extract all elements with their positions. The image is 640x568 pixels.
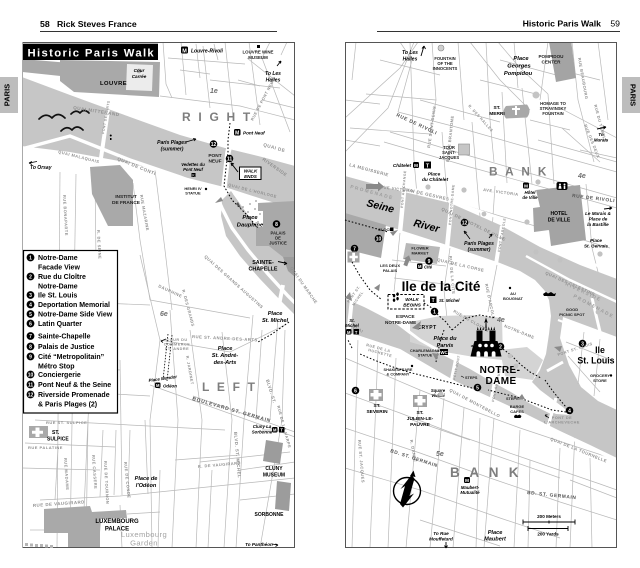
svg-text:R I G H T: R I G H T <box>182 110 252 124</box>
svg-text:Ile de la Cité: Ile de la Cité <box>402 279 481 294</box>
svg-text:To: To <box>598 132 604 137</box>
svg-text:PALAIS: PALAIS <box>383 268 398 273</box>
svg-text:6e: 6e <box>160 311 168 318</box>
svg-text:MUSEUM: MUSEUM <box>263 473 285 479</box>
svg-text:1e: 1e <box>210 88 218 95</box>
svg-text:Mutualité: Mutualité <box>460 490 480 495</box>
svg-text:la Bastille: la Bastille <box>587 222 609 227</box>
svg-text:Maubert: Maubert <box>484 537 507 543</box>
svg-text:WALK: WALK <box>405 297 419 302</box>
svg-text:Garden: Garden <box>130 539 158 548</box>
svg-text:Dauphine: Dauphine <box>237 223 264 229</box>
svg-text:POMPIDOU: POMPIDOU <box>538 54 564 59</box>
svg-text:T: T <box>280 428 283 433</box>
svg-text:LUXEMBOURG: LUXEMBOURG <box>95 519 139 525</box>
svg-text:Châtelet: Châtelet <box>393 163 412 168</box>
svg-text:B A N K: B A N K <box>489 165 549 179</box>
svg-text:STATUE: STATUE <box>185 191 201 196</box>
svg-text:2: 2 <box>499 345 502 351</box>
svg-text:STATUE: STATUE <box>418 353 433 357</box>
svg-text:5: 5 <box>29 312 32 318</box>
svg-text:Facade View: Facade View <box>38 265 80 272</box>
svg-text:CLUNY: CLUNY <box>265 466 283 472</box>
svg-text:Notre-Dame Side View: Notre-Dame Side View <box>38 312 113 319</box>
svg-text:HOTEL: HOTEL <box>551 211 568 217</box>
svg-text:M: M <box>273 428 277 433</box>
svg-text:Palais de Justice: Palais de Justice <box>38 344 95 351</box>
svg-text:St. Louis: St. Louis <box>577 356 614 366</box>
svg-text:M: M <box>235 131 239 137</box>
svg-text:To Les: To Les <box>402 50 418 56</box>
svg-text:Marais: Marais <box>594 138 609 143</box>
svg-text:Place: Place <box>428 172 441 178</box>
svg-text:Sainte-Chapelle: Sainte-Chapelle <box>38 334 91 341</box>
svg-text:des-Arts: des-Arts <box>214 360 237 366</box>
svg-text:CAFES: CAFES <box>510 409 524 414</box>
svg-text:NOTRE-DAME: NOTRE-DAME <box>385 320 416 325</box>
svg-text:4e: 4e <box>577 173 586 180</box>
svg-text:MUSEUM: MUSEUM <box>248 55 268 60</box>
svg-text:du Châtelet: du Châtelet <box>422 177 449 183</box>
svg-text:Louvre-Rivoli: Louvre-Rivoli <box>191 49 224 55</box>
svg-text:Place: Place <box>242 215 258 221</box>
svg-text:Historic Paris Walk: Historic Paris Walk <box>28 47 156 59</box>
svg-text:Place: Place <box>513 56 529 62</box>
svg-text:Conciergerie: Conciergerie <box>38 372 81 379</box>
svg-text:St. Michel: St. Michel <box>439 298 460 303</box>
svg-text:B A N K: B A N K <box>450 465 522 480</box>
svg-text:MERRI: MERRI <box>489 111 505 117</box>
svg-text:PONT: PONT <box>208 153 221 159</box>
svg-text:St. Michel: St. Michel <box>262 318 289 324</box>
svg-text:T: T <box>432 298 435 304</box>
svg-text:58: 58 <box>40 19 50 29</box>
svg-text:SORBONNE: SORBONNE <box>255 512 285 518</box>
svg-text:Riverside Promenade: Riverside Promenade <box>38 392 110 399</box>
svg-text:ST.: ST. <box>494 105 501 111</box>
svg-text:CHAPELLE: CHAPELLE <box>248 267 277 273</box>
svg-text:ENDS: ENDS <box>244 174 258 179</box>
svg-text:WC: WC <box>440 350 448 355</box>
svg-text:COUR DU: COUR DU <box>166 338 187 342</box>
svg-text:5e: 5e <box>436 451 444 458</box>
svg-text:CENTER: CENTER <box>542 60 562 65</box>
svg-text:M: M <box>414 163 418 168</box>
svg-text:9: 9 <box>29 355 32 361</box>
svg-text:Latin Quarter: Latin Quarter <box>38 321 82 328</box>
svg-text:4e: 4e <box>496 317 505 324</box>
svg-text:Notre-Dame: Notre-Dame <box>38 284 78 291</box>
svg-text:To Panthéon: To Panthéon <box>245 542 273 547</box>
svg-text:Ile: Ile <box>595 345 605 355</box>
svg-text:CRYPT: CRYPT <box>417 325 436 331</box>
svg-text:Pompidou: Pompidou <box>504 71 533 77</box>
svg-text:PAUVRE: PAUVRE <box>410 422 430 428</box>
svg-text:Place: Place <box>218 346 233 352</box>
svg-text:de Ville: de Ville <box>522 195 538 200</box>
svg-text:To Les: To Les <box>265 71 281 77</box>
svg-text:Place de: Place de <box>589 217 608 222</box>
svg-text:Rue du Cloître: Rue du Cloître <box>38 274 86 281</box>
svg-text:Carrée: Carrée <box>132 74 147 79</box>
svg-text:10: 10 <box>28 373 34 379</box>
svg-text:Notre-Dame: Notre-Dame <box>38 255 78 262</box>
svg-text:M: M <box>182 48 187 54</box>
svg-text:To Rue: To Rue <box>433 531 449 536</box>
svg-text:Place de: Place de <box>135 476 158 482</box>
svg-text:Pont Neuf & the Seine: Pont Neuf & the Seine <box>38 382 111 389</box>
svg-text:MARKET: MARKET <box>411 250 429 255</box>
svg-text:M: M <box>465 478 469 483</box>
svg-text:RUE PALATINE: RUE PALATINE <box>28 445 63 450</box>
svg-text:St. André-: St. André- <box>212 353 239 359</box>
svg-text:WALK: WALK <box>244 169 258 174</box>
svg-text:JACQUES: JACQUES <box>439 155 459 160</box>
svg-text:Rick Steves France: Rick Steves France <box>57 19 137 29</box>
svg-text:M: M <box>347 330 351 335</box>
svg-text:Cour: Cour <box>134 68 145 73</box>
svg-text:1: 1 <box>433 310 436 316</box>
svg-text:M: M <box>524 184 528 189</box>
svg-text:1: 1 <box>29 256 32 262</box>
svg-text:4: 4 <box>568 409 571 415</box>
svg-text:200 Meters: 200 Meters <box>537 514 561 519</box>
svg-text:Historic Paris Walk: Historic Paris Walk <box>523 19 602 29</box>
svg-text:BEGINS: BEGINS <box>403 303 422 308</box>
svg-text:COMMERCE: COMMERCE <box>164 343 191 347</box>
svg-text:NEUF: NEUF <box>208 159 221 165</box>
svg-text:Place: Place <box>488 530 503 536</box>
svg-text:Place: Place <box>590 238 602 243</box>
svg-text:Michel: Michel <box>345 323 359 328</box>
svg-text:FOUNTAIN: FOUNTAIN <box>542 111 563 116</box>
svg-text:Odéon: Odéon <box>163 384 177 389</box>
svg-text:PARIS: PARIS <box>3 84 12 106</box>
svg-text:SULPICE: SULPICE <box>47 437 69 443</box>
svg-text:6: 6 <box>354 389 357 395</box>
svg-text:JULIEN-LE-: JULIEN-LE- <box>407 416 434 422</box>
svg-text:PICNIC SPOT: PICNIC SPOT <box>559 312 585 317</box>
svg-text:8: 8 <box>29 345 32 351</box>
svg-text:INSTITUT: INSTITUT <box>115 194 137 200</box>
svg-text:Paris Plages: Paris Plages <box>157 140 187 146</box>
svg-text:& COMPANY: & COMPANY <box>387 373 410 377</box>
svg-text:6: 6 <box>29 322 32 328</box>
svg-text:Cité: Cité <box>424 265 433 270</box>
svg-text:SHAKESPEARE: SHAKESPEARE <box>384 368 413 372</box>
svg-text:Sorbonne: Sorbonne <box>252 430 273 435</box>
svg-text:STORE: STORE <box>593 378 607 383</box>
svg-text:LOUVRE WINE: LOUVRE WINE <box>243 50 274 55</box>
svg-text:10: 10 <box>376 237 382 243</box>
svg-text:(summer): (summer) <box>161 147 184 153</box>
svg-text:L'ARCHEVECHE: L'ARCHEVECHE <box>544 421 580 425</box>
svg-text:Le Marais &: Le Marais & <box>585 211 611 216</box>
svg-text:4: 4 <box>29 303 32 309</box>
svg-text:Pont Neuf: Pont Neuf <box>243 131 265 136</box>
svg-text:T: T <box>355 330 358 335</box>
svg-text:INNOCENTS: INNOCENTS <box>433 66 458 71</box>
svg-text:7: 7 <box>29 334 32 340</box>
svg-text:Ile St. Louis: Ile St. Louis <box>38 293 77 300</box>
svg-text:M: M <box>156 383 160 388</box>
svg-text:Halles: Halles <box>403 57 418 63</box>
svg-text:11: 11 <box>28 383 34 389</box>
svg-text:12: 12 <box>28 393 34 399</box>
svg-text:L E F T: L E F T <box>202 380 257 394</box>
svg-text:2: 2 <box>29 275 32 281</box>
svg-text:59: 59 <box>610 19 620 29</box>
svg-text:St. Gervais: St. Gervais <box>584 244 608 249</box>
svg-text:SEVERIN: SEVERIN <box>366 409 388 415</box>
svg-text:Place: Place <box>268 311 283 317</box>
svg-text:8: 8 <box>275 222 278 228</box>
svg-text:l'Odéon: l'Odéon <box>136 483 157 489</box>
svg-text:To Orsay: To Orsay <box>30 165 52 171</box>
svg-text:Métro Stop: Métro Stop <box>38 364 75 371</box>
svg-text:Place du: Place du <box>433 336 457 342</box>
svg-text:DE VILLE: DE VILLE <box>548 218 571 224</box>
svg-text:Georges: Georges <box>507 64 531 70</box>
svg-text:PONT DE: PONT DE <box>552 416 572 420</box>
svg-text:Cluny La: Cluny La <box>253 424 272 429</box>
svg-text:Mouffetard: Mouffetard <box>429 537 453 542</box>
svg-text:Cité “Metropolitain”: Cité “Metropolitain” <box>38 354 104 361</box>
svg-text:JUSTICE: JUSTICE <box>269 241 287 246</box>
svg-text:SAINTE-: SAINTE- <box>252 260 274 266</box>
svg-text:ST.: ST. <box>52 430 60 436</box>
svg-text:Pont Neuf: Pont Neuf <box>183 167 203 172</box>
svg-text:BOUGNAT: BOUGNAT <box>503 296 523 301</box>
svg-text:ST. ANDRE: ST. ANDRE <box>165 347 189 351</box>
svg-text:200 Yards: 200 Yards <box>537 532 559 537</box>
svg-text:STEPS: STEPS <box>506 397 519 401</box>
svg-text:(summer): (summer) <box>468 247 491 253</box>
svg-text:ST.: ST. <box>374 403 381 409</box>
svg-text:STEPS: STEPS <box>465 376 478 380</box>
svg-text:ST.: ST. <box>417 410 424 416</box>
svg-text:12: 12 <box>462 221 468 227</box>
svg-text:5: 5 <box>476 386 479 392</box>
svg-text:3: 3 <box>29 293 32 299</box>
svg-text:Deportation Memorial: Deportation Memorial <box>38 302 110 309</box>
svg-text:& Paris Plages (2): & Paris Plages (2) <box>38 402 97 409</box>
svg-text:LOUVRE: LOUVRE <box>100 81 127 87</box>
svg-text:12: 12 <box>211 142 217 148</box>
svg-text:ESPACE: ESPACE <box>396 314 415 319</box>
svg-text:11: 11 <box>227 157 233 163</box>
svg-text:DAME: DAME <box>485 376 516 387</box>
svg-text:PARIS: PARIS <box>629 84 638 106</box>
svg-text:DE FRANCE: DE FRANCE <box>112 200 141 206</box>
svg-text:RUE ST. SULPICE: RUE ST. SULPICE <box>46 420 87 425</box>
svg-text:M: M <box>418 264 422 269</box>
